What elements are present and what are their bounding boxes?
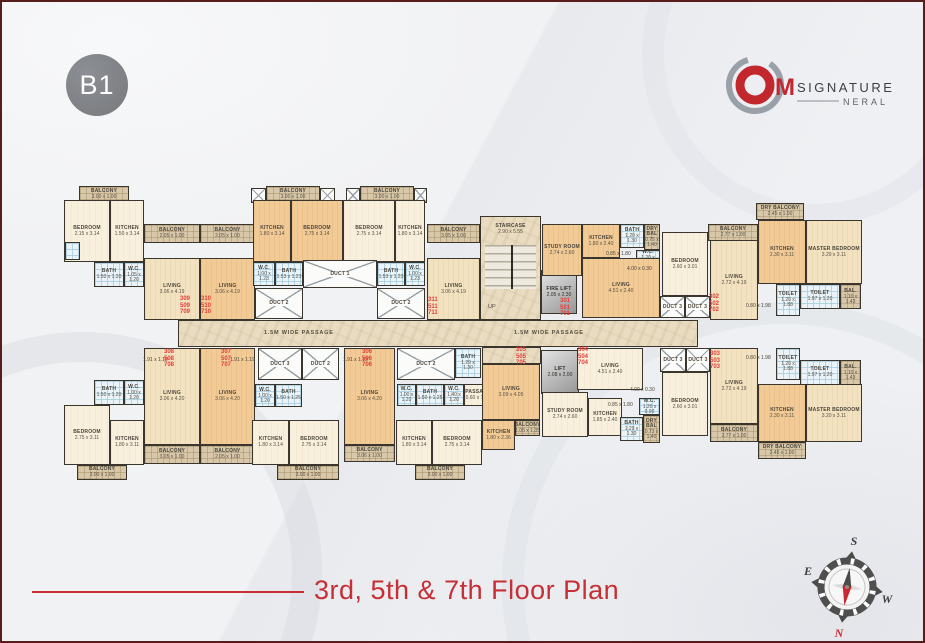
room-w-c: W.C.1.40 x 1.20 xyxy=(444,384,464,406)
page-title: 3rd, 5th & 7th Floor Plan xyxy=(314,575,619,606)
room-living: LIVING3.06 x 4.19 xyxy=(144,258,200,320)
room-toilet: TOILET1.97 x 1.20 xyxy=(800,360,840,385)
room-duct-3: DUCT 3 xyxy=(258,348,302,380)
room-toilet: TOILET1.20 x 1.88 xyxy=(776,348,800,380)
unit-number-stack: 310 510 710 xyxy=(201,296,211,316)
room-master-bedroom: MASTER BEDROOM3.29 x 3.11 xyxy=(806,220,862,284)
dimension-label: 1.5M WIDE PASSAGE xyxy=(514,331,584,336)
room-dry-bal: DRY BAL0.75 x 1.40 xyxy=(644,224,660,250)
room-balcony: BALCONY3.00 x 1.00 xyxy=(277,465,339,480)
room-balcony: BALCONY3.05 x 1.00 xyxy=(144,445,200,464)
room-kitchen: KITCHEN1.80 x 2.36 xyxy=(482,420,515,450)
room-duct-3: DUCT 3 xyxy=(660,296,685,318)
room-balcony: BALCONY3.05 x 1.00 xyxy=(427,224,480,243)
room-bath: BATH1.29 x 1.30 xyxy=(455,348,481,378)
room-fire-lift: FIRE LIFT2.05 x 2.30 xyxy=(541,270,577,314)
unit-number-stack: 306 506 706 xyxy=(362,349,372,369)
room-kitchen: KITCHEN2.30 x 3.11 xyxy=(758,220,806,284)
floor-plan: STAIRCASE2.90 x 5.55UPFIRE LIFT2.05 x 2.… xyxy=(2,2,925,643)
room-bath: BATH1.29 x 1.30 xyxy=(620,417,643,441)
room-bedroom: BEDROOM2.75 x 3.14 xyxy=(289,420,339,465)
room-duct-2: DUCT 2 xyxy=(377,288,425,319)
room-balcony: BALCONY2.05 x 1.00 xyxy=(200,224,255,243)
room-staircase: STAIRCASE2.90 x 5.55UP xyxy=(480,216,541,320)
dimension-label: 0.85 x 1.80 xyxy=(606,252,631,257)
room-duct-3: DUCT 3 xyxy=(686,348,710,372)
unit-number-stack: 302 502 702 xyxy=(709,294,719,314)
room-kitchen: KITCHEN1.80 x 3.14 xyxy=(395,200,425,262)
room-duct-2: DUCT 2 xyxy=(302,348,339,380)
unit-number-stack: 301 501 701 xyxy=(560,298,570,318)
unit-number-stack: 309 509 709 xyxy=(180,296,190,316)
room-balcony: BALCONY2.05 x 1.00 xyxy=(200,445,255,464)
room-balcony: BALCONY3.00 x 1.00 xyxy=(77,465,127,480)
room-bedroom: BEDROOM2.75 x 3.14 xyxy=(432,420,482,465)
room-bedroom: BEDROOM2.60 x 3.01 xyxy=(662,232,708,296)
room-bath: BATH1.50 x 1.20 xyxy=(94,380,124,405)
room-dry-bal: DRY BAL0.73 x 1.40 xyxy=(643,415,660,443)
room-balcony: BALCONY3.06 x 1.00 xyxy=(344,445,395,462)
room-duct-3: DUCT 3 xyxy=(660,348,686,372)
room-dry-balcony: DRY BALCONY2.45 x 1.00 xyxy=(758,442,806,459)
compass-east: E xyxy=(803,564,812,578)
dimension-label: 4.00 x 0.30 xyxy=(627,267,652,272)
compass-south: S xyxy=(851,534,858,548)
room-passage xyxy=(482,347,541,364)
room-w-c: W.C.1.00 x 1.23 xyxy=(253,262,275,286)
room-bal: BAL.1.10 x 1.43 xyxy=(840,360,861,385)
room-duct-2: DUCT 2 xyxy=(255,288,303,319)
room-study-room: STUDY ROOM2.74 x 2.60 xyxy=(542,392,588,437)
room-w-c: W.C.1.00 x 1.23 xyxy=(405,262,425,286)
room-toilet: TOILET1.97 x 1.20 xyxy=(800,284,840,309)
room-lift: LIFT2.08 x 2.00 xyxy=(541,350,579,394)
room-w-c: W.C.1.00 x 1.20 xyxy=(397,384,416,406)
room-bal: BAL.1.10 x 1.43 xyxy=(840,284,861,309)
title-rule xyxy=(32,591,304,593)
dimension-label: 0.85 x 1.80 xyxy=(608,403,633,408)
unit-number-stack: 311 511 711 xyxy=(428,297,438,317)
room-dry-balcony: DRY BALCONY2.45 x 1.00 xyxy=(756,203,804,220)
room-kitchen: KITCHEN1.80 x 3.14 xyxy=(252,420,289,465)
room-bath: BATH1.50 x 1.25 xyxy=(275,384,302,407)
room-toilet: TOILET1.20 x 1.88 xyxy=(776,284,800,316)
room-kitchen: KITCHEN1.80 x 3.14 xyxy=(396,420,432,465)
unit-number-stack: 304 504 704 xyxy=(578,347,588,367)
compass-north: N xyxy=(834,626,845,639)
room-study-room: STUDY ROOM2.74 x 2.60 xyxy=(542,224,582,276)
room-balcony: BALCONY2.77 x 1.00 xyxy=(710,424,758,442)
room-duct-2: DUCT 2 xyxy=(397,348,455,380)
room-balcony: BALCONY2.77 x 1.00 xyxy=(708,224,758,241)
room-bedroom: BEDROOM2.60 x 3.01 xyxy=(662,372,708,436)
room-living: LIVING3.09 x 4.05 xyxy=(482,364,540,420)
dimension-label: 1.91 x 1.19 xyxy=(230,358,255,363)
room-bath: BATH1.50 x 1.25 xyxy=(416,384,444,406)
dimension-label: 4.00 x 0.30 xyxy=(630,388,655,393)
room-duct-3: DUCT 3 xyxy=(685,296,710,318)
unit-number-stack: 303 503 703 xyxy=(710,351,720,371)
room-w-c: W.C.1.00 x 1.20 xyxy=(255,384,275,407)
room-w-c: W.C.1.05 x 1.20 xyxy=(124,262,144,287)
room-kitchen: KITCHEN1.80 x 3.11 xyxy=(110,420,144,465)
room-balcony: BALCONY1.05 x 1.35 xyxy=(515,420,540,436)
room-bath xyxy=(65,242,80,260)
room-kitchen: KITCHEN2.30 x 3.11 xyxy=(758,384,806,442)
room-w-c: W.C.1.00 x 1.20 xyxy=(124,380,144,405)
room-balcony: BALCONY3.00 x 1.00 xyxy=(415,465,465,480)
room-master-bedroom: MASTER BEDROOM3.20 x 3.11 xyxy=(806,384,862,442)
unit-number-stack: 308 508 708 xyxy=(164,349,174,369)
room-bath: BATH1.50 x 1.20 xyxy=(94,262,124,287)
room-bath: BATH1.53 x 1.23 xyxy=(275,262,303,286)
room-duct-1: DUCT 1 xyxy=(303,260,377,288)
room-kitchen: KITCHEN1.80 x 3.14 xyxy=(253,200,291,262)
room-bedroom: BEDROOM2.75 x 3.11 xyxy=(64,405,110,465)
compass-rose: S E W N xyxy=(799,533,895,639)
room-bedroom: BEDROOM2.75 x 3.14 xyxy=(343,200,395,262)
room-balcony: BALCONY2.05 x 1.00 xyxy=(144,224,200,243)
room-bath: BATH1.20 x 1.30 xyxy=(620,224,644,248)
room-passage xyxy=(178,320,698,347)
floor-plan-page: B1 M SIGNATURE NERAL STAIRCASE2.90 x 5.5… xyxy=(0,0,925,643)
room-bedroom: BEDROOM2.75 x 3.14 xyxy=(291,200,343,262)
room-kitchen: KITCHEN1.50 x 3.14 xyxy=(110,200,144,262)
room-w-c: W.C.1.20 x 0.90 xyxy=(639,398,660,415)
dimension-label: 1.5M WIDE PASSAGE xyxy=(264,331,334,336)
dimension-label: 0.80 x 1.98 xyxy=(746,356,771,361)
room-bath: BATH1.53 x 1.23 xyxy=(377,262,405,286)
compass-west: W xyxy=(882,592,894,606)
unit-number-stack: 305 505 705 xyxy=(516,347,526,367)
dimension-label: 0.80 x 1.98 xyxy=(746,304,771,309)
unit-number-stack: 307 507 707 xyxy=(221,349,231,369)
